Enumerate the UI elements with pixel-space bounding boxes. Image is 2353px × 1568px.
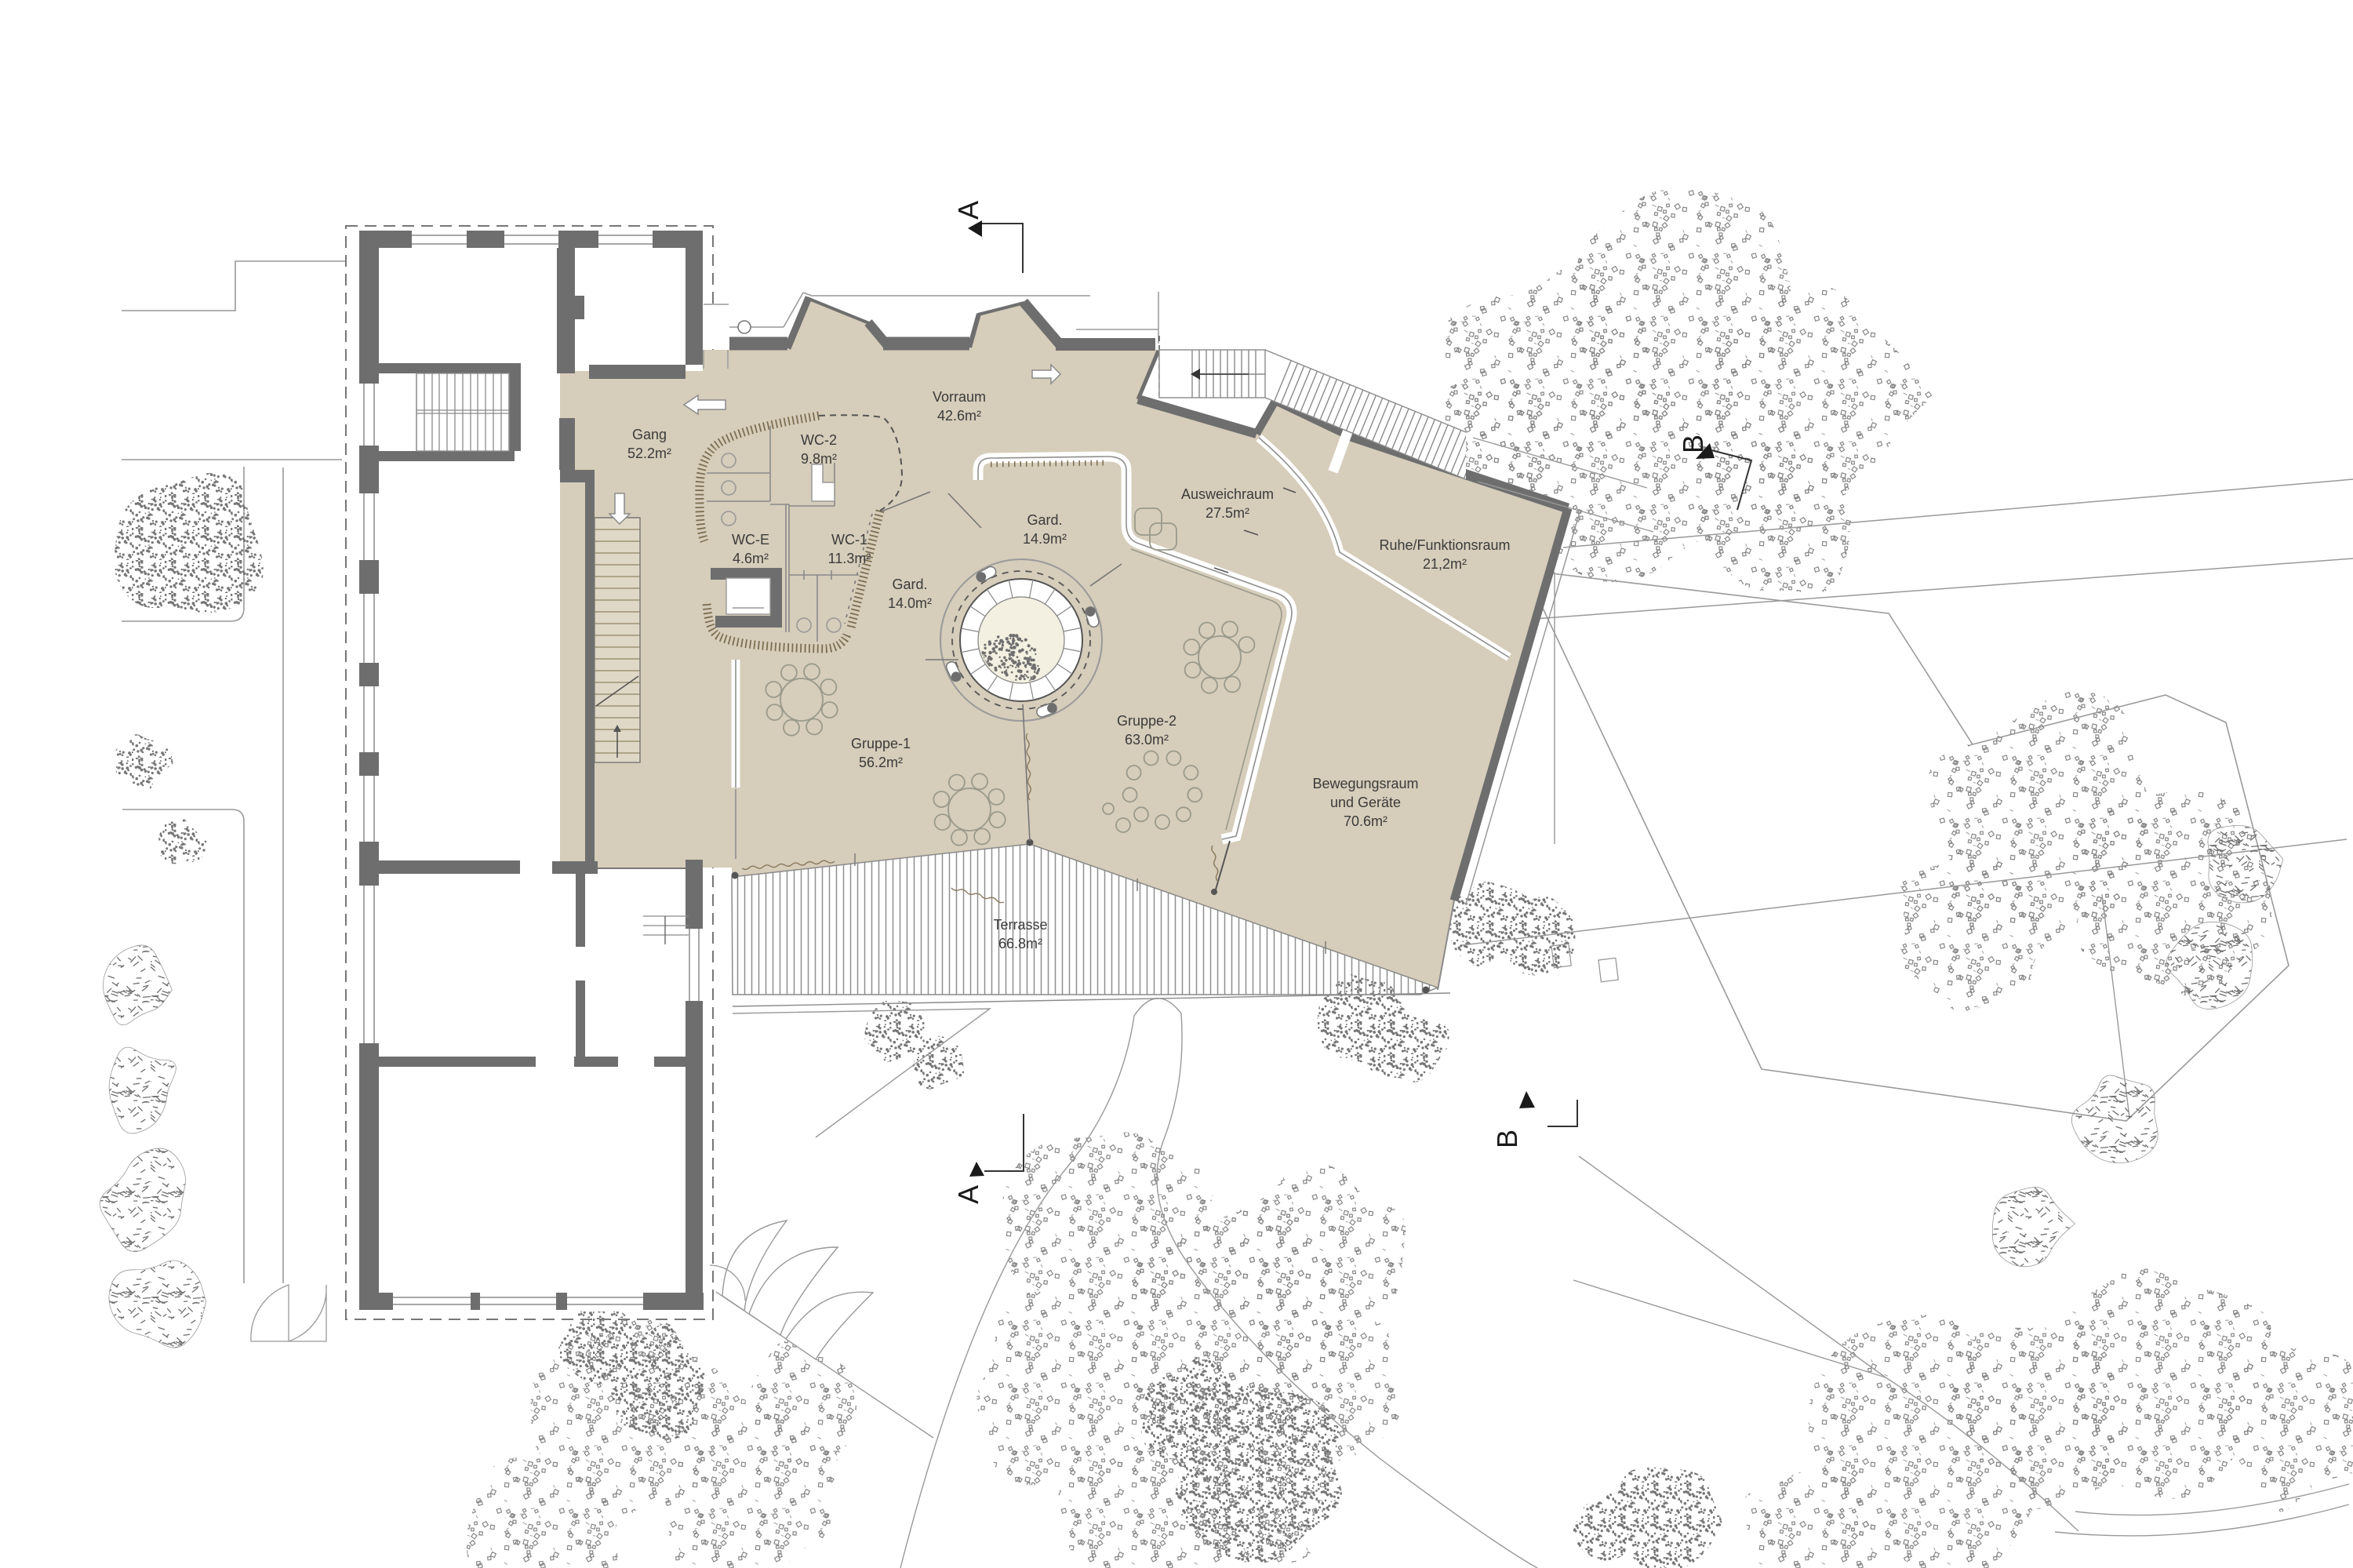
svg-text:B: B <box>1491 1130 1523 1148</box>
svg-text:A: A <box>952 201 984 220</box>
svg-text:A: A <box>952 1185 984 1204</box>
